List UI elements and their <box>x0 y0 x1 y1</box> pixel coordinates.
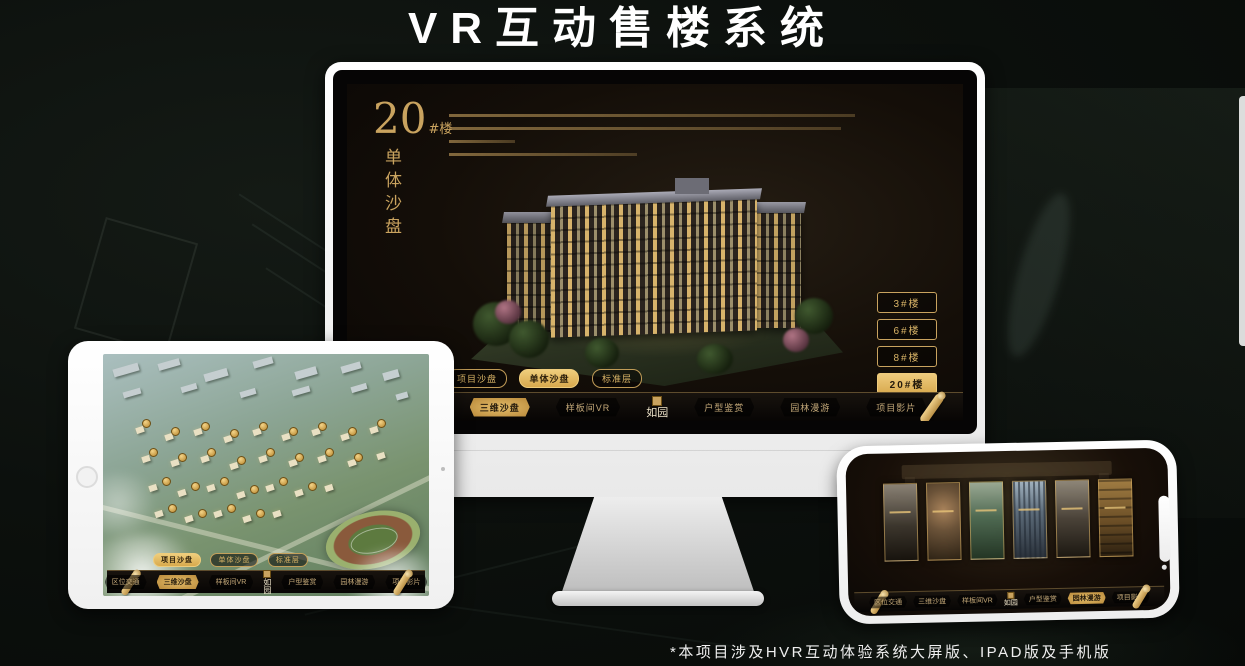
unit-title: 20#楼 单体沙盘 <box>373 98 452 240</box>
unit-subtitle: 单体沙盘 <box>379 148 404 240</box>
building-marker <box>295 453 304 462</box>
building-marker <box>198 509 207 518</box>
aerial-building <box>242 515 251 523</box>
nav-item-floorplan[interactable]: 户型鉴赏 <box>694 398 754 417</box>
seal-icon <box>263 570 271 578</box>
panorama-card-courtyard[interactable] <box>1054 479 1090 558</box>
aerial-building <box>265 484 274 492</box>
aerial-building <box>184 515 193 523</box>
building-marker <box>256 509 265 518</box>
floor-button-8[interactable]: 8#楼 <box>877 346 937 367</box>
tree <box>697 344 733 374</box>
building-marker <box>168 504 177 513</box>
aerial-building <box>177 488 186 496</box>
tab-project-sandbox[interactable]: 项目沙盘 <box>153 553 201 567</box>
building-render <box>465 142 855 386</box>
aerial-building <box>350 383 367 393</box>
view-tab-group: 项目沙盘 单体沙盘 标准层 <box>447 369 650 388</box>
nav-item-model-room-vr[interactable]: 样板间VR <box>209 575 254 589</box>
aerial-building <box>122 388 141 399</box>
building-marker <box>201 422 210 431</box>
camera-dot <box>441 467 445 471</box>
home-button[interactable] <box>76 466 98 488</box>
tab-single-sandbox[interactable]: 单体沙盘 <box>210 553 258 567</box>
poster: VR互动售楼系统 20#楼 单体沙盘 <box>0 0 1245 666</box>
background-panel-edge <box>1239 96 1245 346</box>
tablet-screen: 项目沙盘 单体沙盘 标准层 区位交通 三维沙盘 样板间VR 如园 户型鉴赏 园林… <box>103 354 429 596</box>
floor-button-group: 3#楼 6#楼 8#楼 20#楼 <box>877 292 937 394</box>
tablet-device: 项目沙盘 单体沙盘 标准层 区位交通 三维沙盘 样板间VR 如园 户型鉴赏 园林… <box>68 341 454 609</box>
nav-item-location-traffic[interactable]: 区位交通 <box>105 575 147 589</box>
tablet-navbar: 区位交通 三维沙盘 样板间VR 如园 户型鉴赏 园林漫游 项目影片 <box>107 570 425 593</box>
aerial-building <box>236 491 245 499</box>
panorama-card-interior[interactable] <box>882 483 918 562</box>
aerial-building <box>340 361 361 373</box>
brand-logo: 如园 <box>1004 592 1018 607</box>
page-title: VR互动售楼系统 <box>0 0 1245 58</box>
aerial-building <box>207 484 216 492</box>
panorama-card-row <box>846 478 1170 563</box>
blossom-tree <box>783 328 809 352</box>
nav-item-floorplan[interactable]: 户型鉴赏 <box>1024 592 1062 605</box>
brand-logo: 如园 <box>646 396 668 418</box>
nav-item-location-traffic[interactable]: 区位交通 <box>869 596 907 609</box>
nav-item-3d-sandbox[interactable]: 三维沙盘 <box>913 595 951 608</box>
aerial-building <box>181 383 198 393</box>
building-marker <box>191 482 200 491</box>
building-marker <box>178 453 187 462</box>
aerial-building <box>252 356 273 368</box>
aerial-building <box>272 510 281 518</box>
view-tab-group: 项目沙盘 单体沙盘 标准层 <box>153 549 313 567</box>
monitor-stand <box>555 497 761 594</box>
building-facade <box>551 198 757 337</box>
nav-item-3d-sandbox[interactable]: 三维沙盘 <box>470 398 530 417</box>
seal-icon <box>652 396 662 406</box>
building-marker <box>149 448 158 457</box>
footnote: *本项目涉及HVR互动体验系统大屏版、IPAD版及手机版 <box>670 641 1111 662</box>
tree <box>585 338 619 368</box>
phone-device: 区位交通 三维沙盘 样板间VR 如园 户型鉴赏 园林漫游 项目影片 <box>836 439 1180 624</box>
building-marker <box>227 504 236 513</box>
aerial-building <box>112 363 139 378</box>
aerial-building <box>213 510 222 518</box>
phone-camera-dot <box>1162 564 1167 569</box>
panorama-card-study[interactable] <box>1097 478 1133 557</box>
building-marker <box>237 456 246 465</box>
aerial-building <box>292 386 311 397</box>
phone-screen: 区位交通 三维沙盘 样板间VR 如园 户型鉴赏 园林漫游 项目影片 <box>845 448 1170 617</box>
nav-item-garden-roam[interactable]: 园林漫游 <box>1068 591 1106 604</box>
building-marker <box>171 427 180 436</box>
gate-silhouette <box>902 461 1112 479</box>
aerial-building <box>203 368 228 382</box>
building-marker <box>318 422 327 431</box>
panorama-card-garden[interactable] <box>968 481 1004 560</box>
building-marker <box>142 419 151 428</box>
aerial-building <box>239 388 256 398</box>
aerial-building <box>324 484 333 492</box>
aerial-building <box>396 391 409 400</box>
building-penthouse <box>675 178 709 194</box>
floor-button-20[interactable]: 20#楼 <box>877 373 937 394</box>
building-marker <box>325 448 334 457</box>
phone-navbar: 区位交通 三维沙盘 样板间VR 如园 户型鉴赏 园林漫游 项目影片 <box>854 586 1164 612</box>
panorama-card-tower[interactable] <box>1011 480 1047 559</box>
building-marker <box>377 419 386 428</box>
building-marker <box>250 485 259 494</box>
tab-single-sandbox[interactable]: 单体沙盘 <box>519 369 579 388</box>
nav-item-garden-roam[interactable]: 园林漫游 <box>333 575 375 589</box>
building-marker <box>266 448 275 457</box>
building-marker <box>207 448 216 457</box>
tab-standard-floor[interactable]: 标准层 <box>268 553 308 567</box>
nav-item-model-room-vr[interactable]: 样板间VR <box>957 594 998 607</box>
building-marker <box>308 482 317 491</box>
blossom-tree <box>495 300 521 324</box>
monitor-base <box>552 591 764 606</box>
building-marker <box>279 477 288 486</box>
panorama-card-kitchen[interactable] <box>925 482 961 561</box>
nav-item-garden-roam[interactable]: 园林漫游 <box>780 398 840 417</box>
aerial-building <box>295 488 304 496</box>
aerial-building <box>383 369 401 381</box>
aerial-building <box>295 366 318 380</box>
aerial-building <box>158 358 181 371</box>
nav-item-floorplan[interactable]: 户型鉴赏 <box>281 575 323 589</box>
floor-button-3[interactable]: 3#楼 <box>877 292 937 313</box>
phone-notch <box>1158 496 1170 562</box>
nav-item-project-film[interactable]: 项目影片 <box>866 398 926 417</box>
building-marker <box>348 427 357 436</box>
tab-standard-floor[interactable]: 标准层 <box>592 369 642 388</box>
unit-number: 20 <box>373 94 426 143</box>
building-wing-right <box>757 212 801 328</box>
building-marker <box>230 429 239 438</box>
building-marker <box>162 477 171 486</box>
nav-item-model-room-vr[interactable]: 样板间VR <box>556 398 621 417</box>
building-marker <box>220 477 229 486</box>
building-marker <box>354 453 363 462</box>
floor-button-6[interactable]: 6#楼 <box>877 319 937 340</box>
background-plaque <box>74 217 198 355</box>
aerial-building <box>376 452 385 460</box>
building-marker <box>259 422 268 431</box>
nav-item-3d-sandbox[interactable]: 三维沙盘 <box>157 575 199 589</box>
tab-project-sandbox[interactable]: 项目沙盘 <box>447 369 507 388</box>
building-marker <box>289 427 298 436</box>
tree <box>509 320 549 358</box>
brand-logo: 如园 <box>263 570 271 595</box>
